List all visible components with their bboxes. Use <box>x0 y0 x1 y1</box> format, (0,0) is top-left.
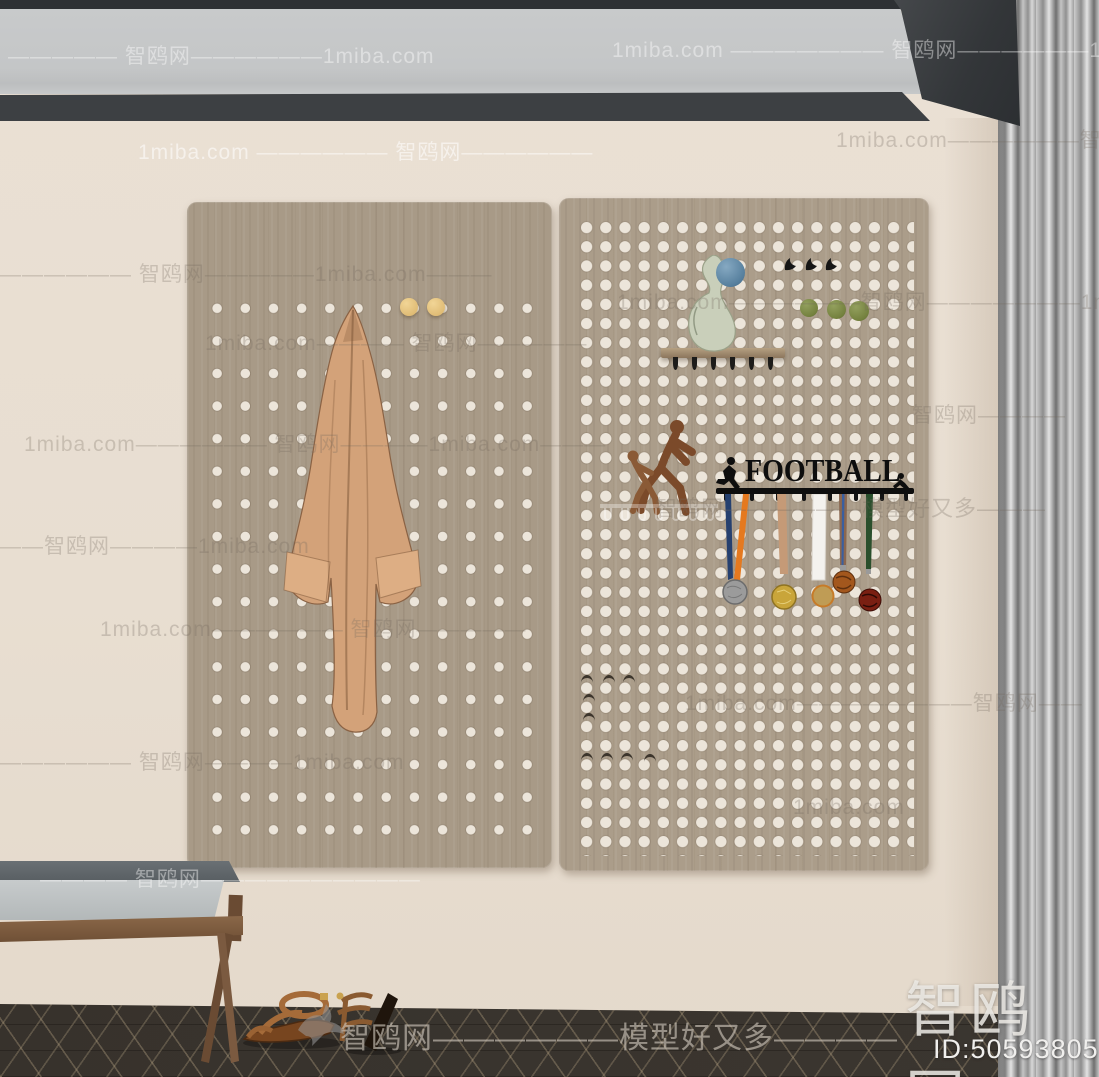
white-hook-rack <box>600 504 718 524</box>
shelf-hook <box>711 357 716 370</box>
medal-maroon-ball <box>859 494 881 611</box>
shelf-hook <box>749 357 754 370</box>
medal-amber-ball <box>833 494 855 593</box>
shelf-hook <box>768 357 773 370</box>
ceiling-beam-bottom-edge <box>0 92 930 121</box>
model-id-text: ID:505938056 <box>933 1034 1099 1065</box>
shelf-hook <box>730 357 735 370</box>
green-ball <box>800 299 818 317</box>
medal-group <box>713 494 898 619</box>
bird-hook-icon <box>805 257 818 271</box>
hanger-hook <box>904 494 908 501</box>
wall-shadow <box>944 118 998 1006</box>
white-hook <box>689 508 697 521</box>
scene-3d-render: FOOTBALL <box>0 0 1099 1077</box>
ceiling-beam-top-edge <box>0 0 1016 9</box>
white-hook <box>604 508 612 521</box>
medal-gold <box>772 494 796 609</box>
bench-front <box>0 880 224 920</box>
curtain <box>998 0 1099 1077</box>
hanging-robe <box>283 300 423 736</box>
white-hook <box>655 508 663 521</box>
shelf-hook <box>673 357 678 370</box>
runner-sculpture <box>620 416 708 518</box>
peg-knob <box>427 298 445 316</box>
gull-logo-icon <box>292 1000 344 1048</box>
watermark-text: 1miba.com —————— 智鸥网—————— <box>138 136 593 166</box>
ceiling-beam-face <box>0 8 926 94</box>
bird-hook-icon <box>784 257 797 271</box>
medal-bronze <box>812 494 834 607</box>
white-hook <box>638 508 646 521</box>
football-player-icon <box>892 473 914 491</box>
shelf-hook <box>692 357 697 370</box>
bench-top <box>0 861 240 882</box>
football-sign-text: FOOTBALL <box>745 455 901 489</box>
green-ball <box>827 300 846 319</box>
blue-ball <box>716 258 745 287</box>
medal-silver <box>723 494 749 604</box>
bird-hook-icon <box>825 257 838 271</box>
white-hook <box>672 508 680 521</box>
white-hook <box>621 508 629 521</box>
green-ball <box>849 301 869 321</box>
